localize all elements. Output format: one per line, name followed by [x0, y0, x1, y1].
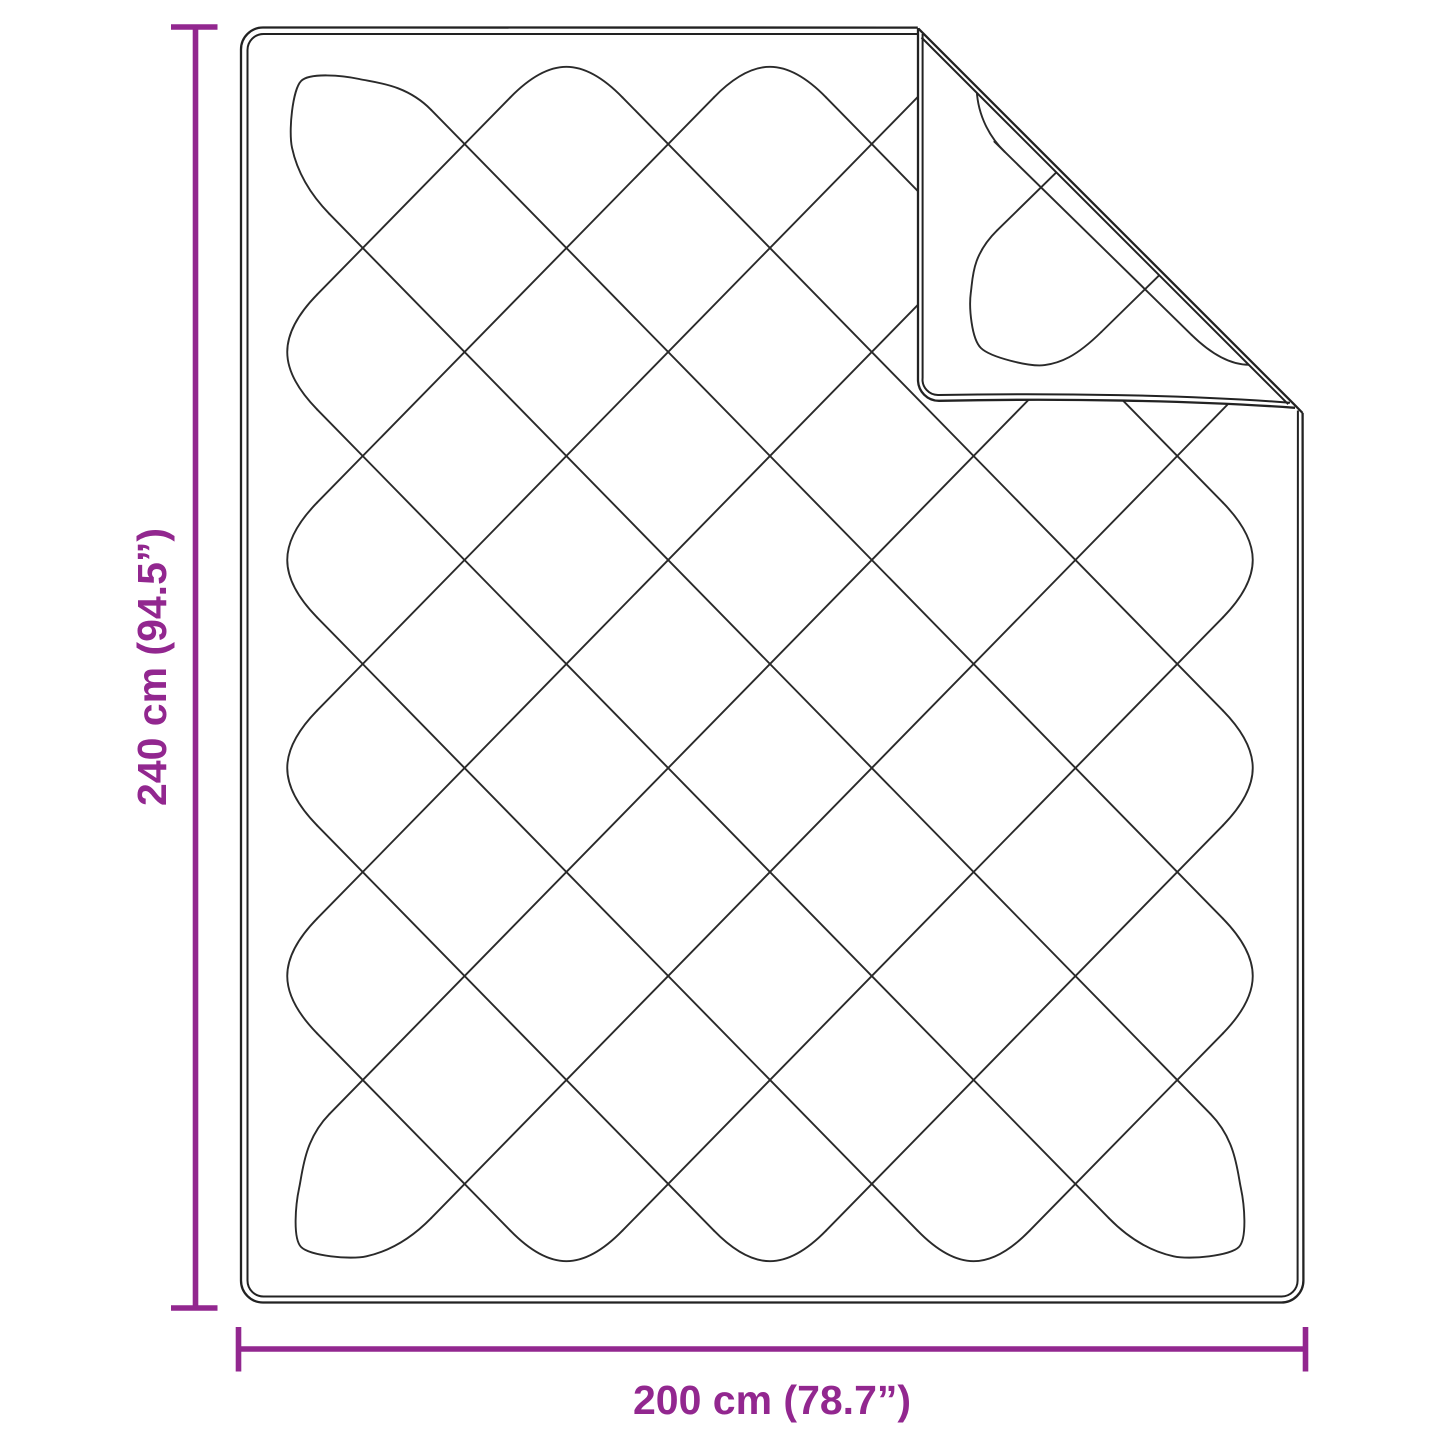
svg-text:200 cm (78.7”): 200 cm (78.7”): [633, 1377, 911, 1423]
svg-text:240 cm (94.5”): 240 cm (94.5”): [129, 528, 175, 806]
